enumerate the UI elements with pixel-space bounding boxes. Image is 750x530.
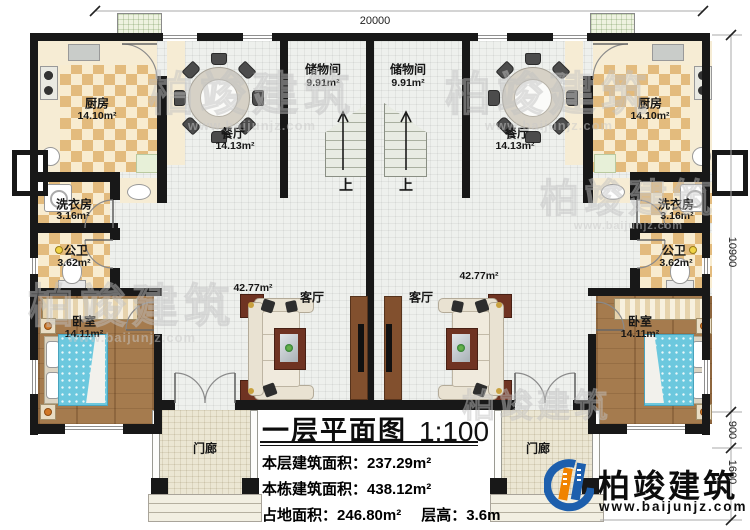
tv (358, 324, 364, 372)
burner (44, 71, 53, 80)
wall-bottom (162, 400, 175, 410)
plant (457, 344, 465, 352)
hall-sink (127, 184, 151, 200)
porch-column (242, 478, 259, 494)
stat-value: 438.12m² (367, 481, 431, 498)
stat-value: 3.6m (466, 507, 500, 524)
stat-footprint-height: 占地面积：246.80m² 层高：3.6m (262, 504, 500, 525)
dining-table-top (514, 79, 552, 117)
room-area-dining-left: 14.13m² (215, 140, 254, 152)
kitchen-sink (68, 44, 100, 61)
side-table-dot (496, 302, 502, 308)
side-table-dot (248, 388, 254, 394)
window (65, 424, 123, 434)
lamp (44, 408, 52, 416)
window (163, 33, 197, 41)
kitchen-mat (136, 154, 158, 173)
wall-bedroom-side-left (154, 334, 162, 434)
room-label-kitchen-left: 厨房 (85, 95, 109, 112)
stairs-up-label-left: 上 (339, 175, 353, 195)
room-label-porch-right: 门廊 (526, 440, 550, 457)
wall-kitchen-left (157, 76, 167, 203)
wall-storage-right (462, 41, 470, 198)
room-area-living-left: 42.77m² (233, 282, 272, 294)
dining-table-top (200, 79, 238, 117)
room-label-storage-right: 储物间 (390, 61, 426, 78)
dimension-top: 20000 (360, 15, 391, 27)
wall-bedroom-top-left (30, 288, 162, 296)
stat-label: 本层建筑面积： (262, 455, 367, 472)
window (627, 424, 685, 434)
wall-kitchen-bottom-left (30, 172, 120, 182)
window (478, 33, 507, 41)
brand-url: www.baijunjz.com (599, 499, 748, 514)
kitchen-mat (594, 154, 616, 173)
window-box-left (117, 13, 162, 35)
kitchen-sink (652, 44, 684, 61)
hall-sink (601, 184, 625, 200)
window (702, 360, 710, 394)
sofa-pillow (285, 300, 298, 313)
side-table-dot (496, 388, 502, 394)
wall-hall-left (110, 178, 120, 200)
room-label-bath-left: 公卫 (64, 242, 88, 259)
side-table-dot (248, 302, 254, 308)
room-area-dining-right: 14.13m² (495, 140, 534, 152)
stat-building-area: 本栋建筑面积：438.12m² (262, 478, 431, 499)
stat-value: 246.80m² (337, 507, 401, 524)
stat-value: 237.29m² (367, 455, 431, 472)
room-label-dining-right: 餐厅 (505, 125, 529, 142)
room-label-living-right: 客厅 (409, 289, 433, 306)
room-area-storage-left: 9.91m² (306, 77, 339, 89)
sofa-back (488, 302, 504, 396)
stat-label: 层高： (421, 507, 466, 524)
tv (386, 324, 392, 372)
wall-bottom (573, 400, 588, 410)
room-area-bath-right: 3.62m² (659, 257, 692, 269)
plan-scale: 1:100 (419, 416, 489, 448)
brand-logo-icon (544, 458, 594, 522)
plant (285, 344, 293, 352)
room-label-bedroom-left: 卧室 (72, 313, 96, 330)
flue-box-right (712, 150, 748, 196)
wall-storage-left (280, 41, 288, 198)
window (243, 33, 272, 41)
room-label-storage-left: 储物间 (305, 61, 341, 78)
window (702, 258, 710, 274)
stairs-up-label-right: 上 (399, 175, 413, 195)
window (30, 258, 38, 274)
porch-rail (250, 410, 258, 480)
porch-column (151, 478, 168, 494)
bath-light (55, 246, 63, 254)
wall-laundry-bath-right (632, 223, 710, 233)
window (30, 360, 38, 394)
window-box-right (590, 13, 635, 35)
wall-kitchen-bottom-right (630, 172, 710, 182)
window (553, 33, 587, 41)
room-label-bath-right: 公卫 (662, 242, 686, 259)
title-underline-thin (260, 445, 478, 446)
wall-bedroom-top-right (588, 288, 710, 296)
room-area-kitchen-right: 14.10m² (630, 110, 669, 122)
room-label-living-left: 客厅 (300, 289, 324, 306)
room-area-bath-left: 3.62m² (57, 257, 90, 269)
room-label-bedroom-right: 卧室 (628, 313, 652, 330)
burner (44, 86, 53, 95)
floor-plan-canvas: 厨房 14.10m² 厨房 14.10m² 餐厅 14.13m² 餐厅 14.1… (0, 0, 750, 530)
wall-kitchen-right (583, 76, 593, 203)
wall-bedroom-side-right (588, 334, 596, 434)
room-label-dining-left: 餐厅 (221, 125, 245, 142)
dimension-right-upper: 10900 (726, 237, 738, 268)
stat-label: 本栋建筑面积： (262, 481, 367, 498)
porch-rail (494, 410, 502, 480)
title-underline (260, 441, 478, 443)
stat-floor-area: 本层建筑面积：237.29m² (262, 452, 431, 473)
room-label-kitchen-right: 厨房 (638, 95, 662, 112)
room-area-laundry-right: 3.16m² (660, 210, 693, 222)
porch-steps-left (148, 494, 262, 522)
wall-hall-right (630, 178, 640, 200)
wall-laundry-bath-left (30, 223, 118, 233)
porch-column (490, 478, 507, 494)
room-area-laundry-left: 3.16m² (56, 210, 89, 222)
room-area-bedroom-right: 14.11m² (621, 328, 660, 340)
room-area-living-right: 42.77m² (459, 270, 498, 282)
room-label-porch-left: 门廊 (193, 440, 217, 457)
dimension-right-mid: 900 (726, 421, 738, 439)
room-area-kitchen-left: 14.10m² (77, 110, 116, 122)
room-area-bedroom-left: 14.11m² (65, 328, 104, 340)
stat-label: 占地面积： (262, 507, 337, 524)
bath-light (689, 246, 697, 254)
sofa-pillow (451, 300, 464, 313)
room-area-storage-right: 9.91m² (391, 77, 424, 89)
lamp (44, 322, 52, 330)
